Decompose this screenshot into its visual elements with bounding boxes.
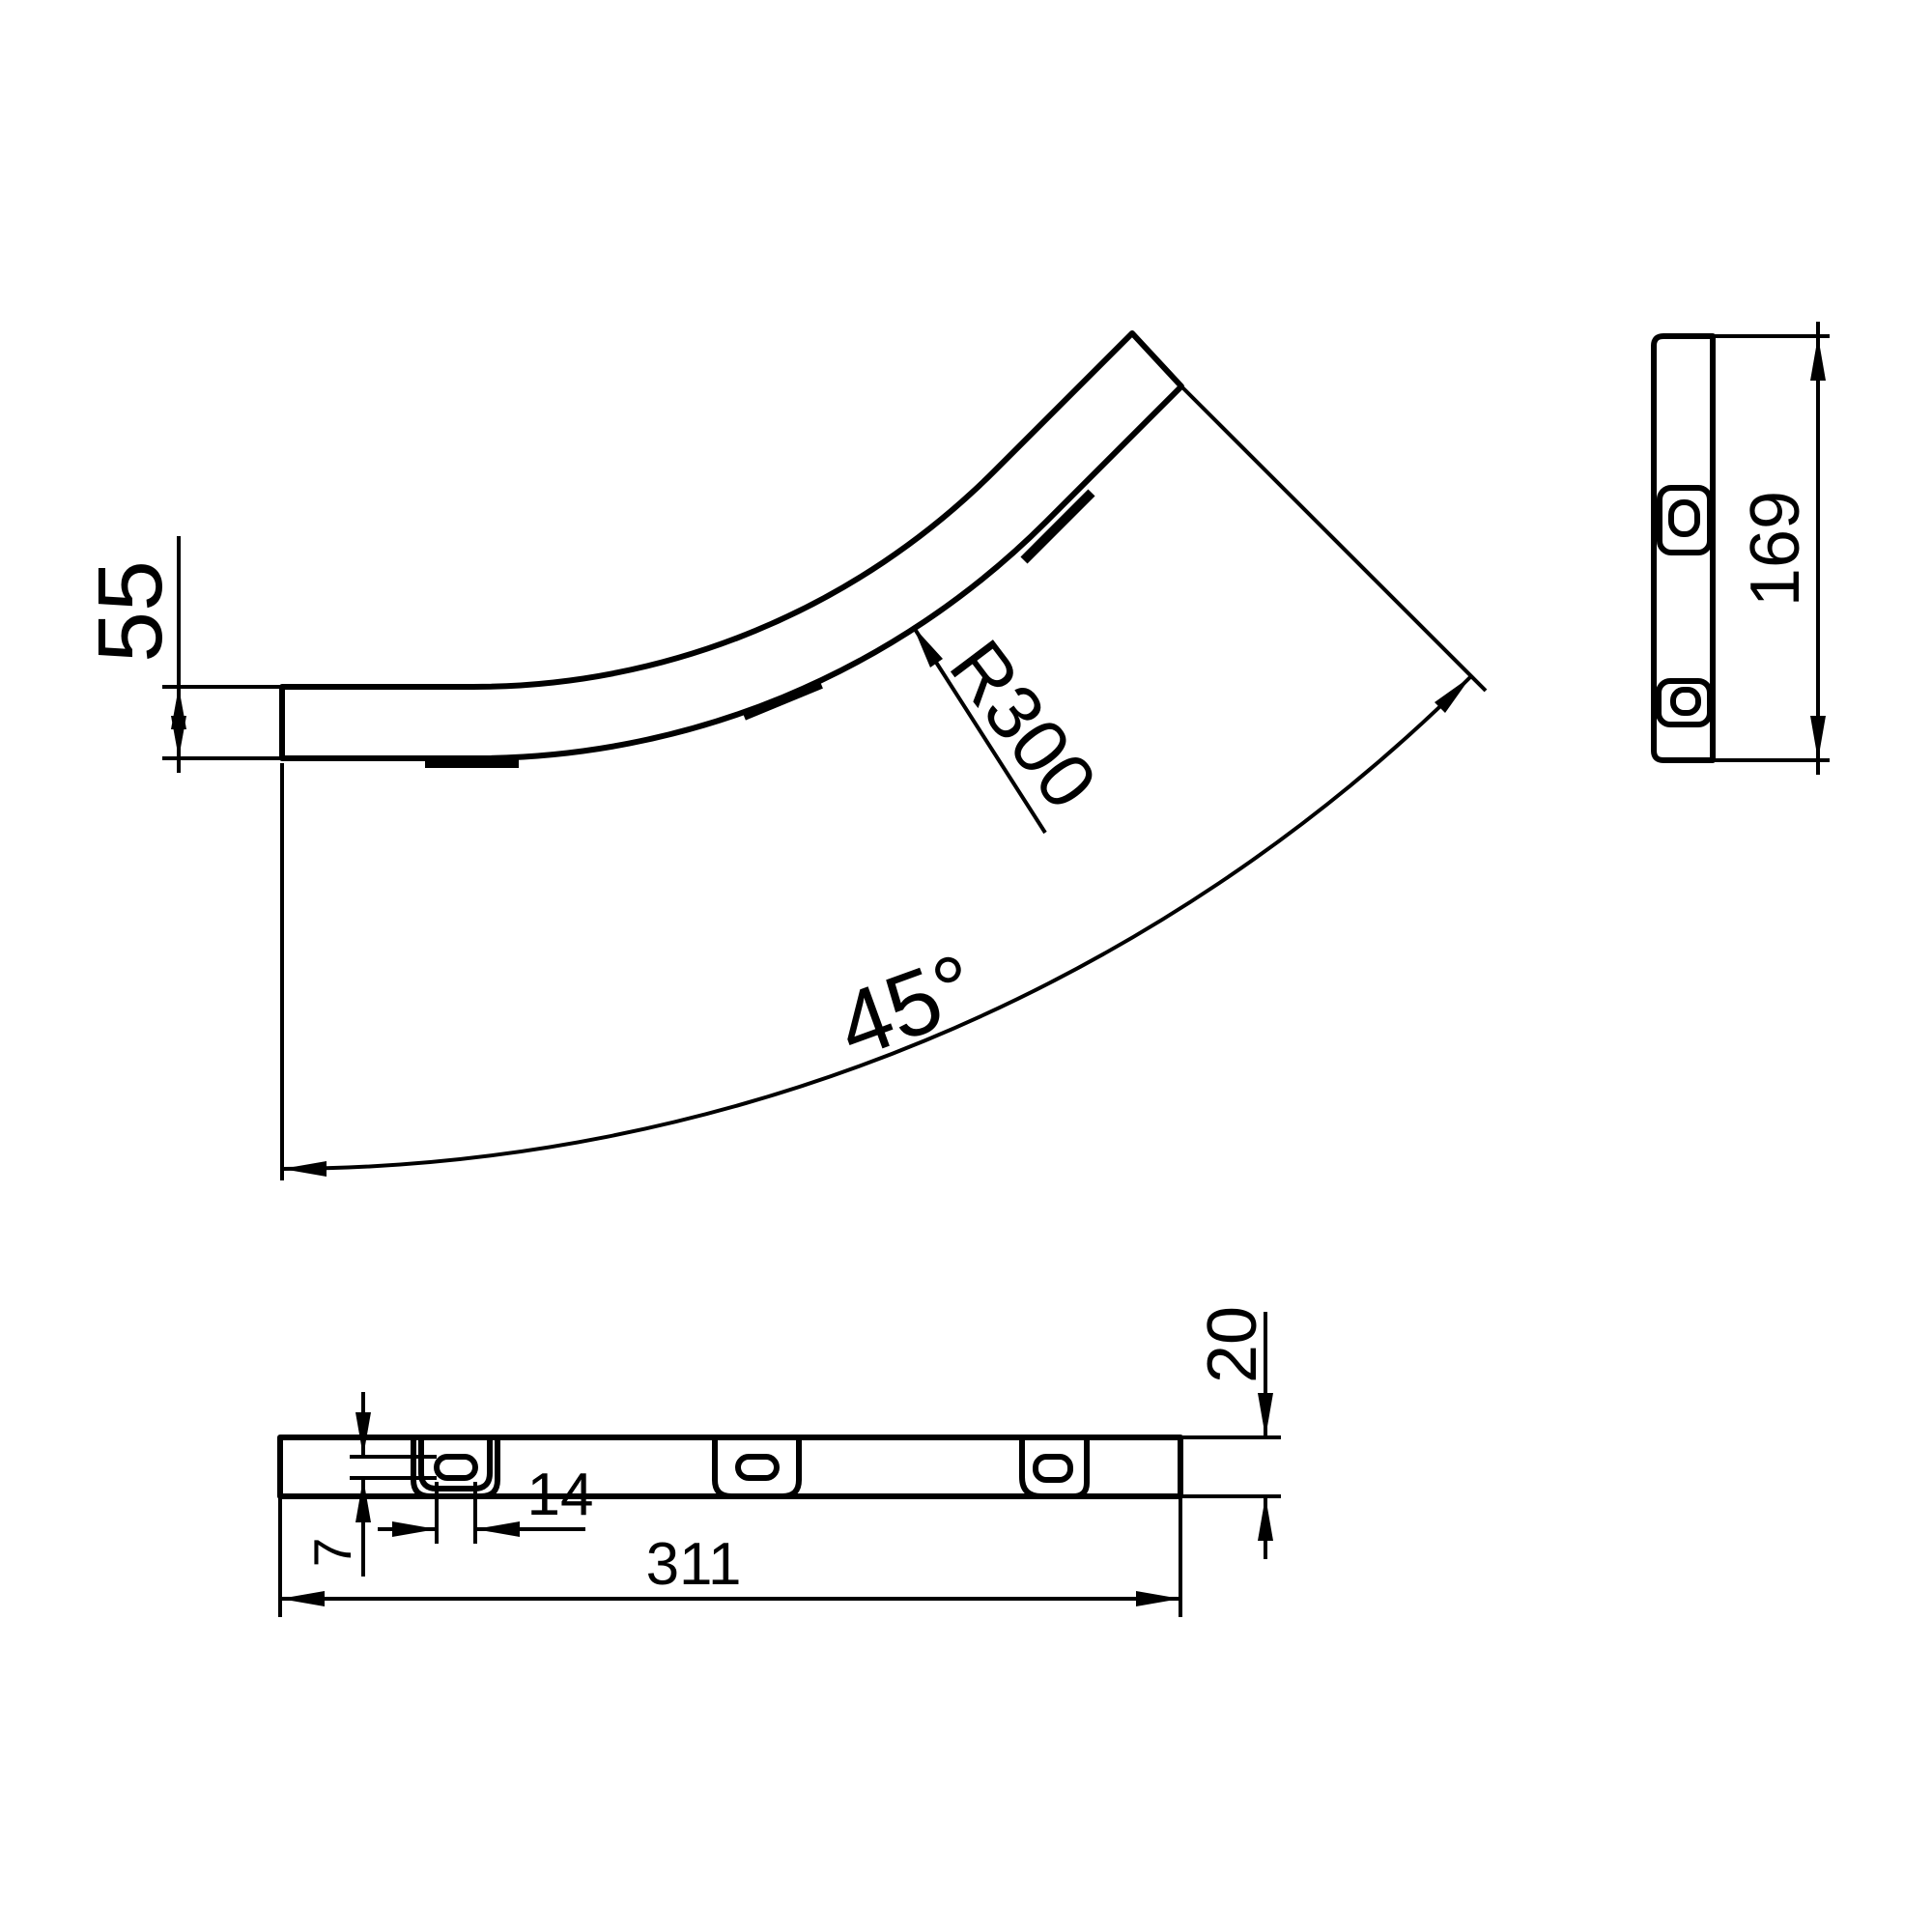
technical-drawing-canvas: 55 R300 45° 169 bbox=[0, 0, 1932, 1932]
dim-55-label: 55 bbox=[79, 560, 182, 663]
dim-55: 55 bbox=[79, 536, 282, 773]
dim-45-arrow-left bbox=[282, 1161, 327, 1177]
dim-20: 20 bbox=[1180, 1306, 1281, 1559]
side-view: 169 bbox=[1654, 322, 1830, 775]
bottom-slot-2 bbox=[738, 1457, 777, 1478]
bottom-tab-3 bbox=[1022, 1437, 1087, 1496]
dim-14-label: 14 bbox=[527, 1462, 594, 1528]
dim-14-arrow-right bbox=[392, 1521, 437, 1537]
main-view-bend-profile: 55 R300 45° bbox=[79, 333, 1486, 1180]
dim-169-arrow-up bbox=[1810, 336, 1826, 381]
bottom-tab-2 bbox=[715, 1437, 799, 1496]
dim-45-extension-right bbox=[1181, 386, 1486, 691]
dim-r300-arrow bbox=[913, 626, 943, 668]
side-view-tab-upper bbox=[1660, 488, 1710, 553]
dim-311-label: 311 bbox=[646, 1531, 742, 1598]
edge-tab-mark-2 bbox=[744, 684, 821, 716]
bottom-view: 20 7 14 311 bbox=[280, 1306, 1281, 1617]
dim-55-arrow-down bbox=[171, 716, 186, 758]
bottom-slot-3 bbox=[1036, 1457, 1070, 1480]
dim-45-arc bbox=[282, 676, 1471, 1169]
dim-r300: R300 bbox=[913, 625, 1114, 833]
dim-20-arrow-up bbox=[1258, 1496, 1273, 1541]
dim-14-arrow-left bbox=[475, 1521, 520, 1537]
dim-7-label: 7 bbox=[302, 1538, 362, 1568]
dim-r300-label: R300 bbox=[933, 625, 1113, 824]
dim-311-arrow-left bbox=[280, 1591, 325, 1606]
dim-169-label: 169 bbox=[1737, 491, 1814, 607]
dim-45deg: 45° bbox=[282, 386, 1486, 1180]
dim-311-arrow-right bbox=[1136, 1591, 1180, 1606]
edge-tab-mark-3 bbox=[1024, 493, 1092, 560]
side-view-slot-lower bbox=[1673, 690, 1698, 713]
dim-20-label: 20 bbox=[1194, 1306, 1271, 1383]
dim-45-arrow-right bbox=[1435, 676, 1471, 713]
dim-311: 311 bbox=[280, 1496, 1180, 1617]
bottom-slot-1 bbox=[437, 1457, 475, 1478]
dim-45-label: 45° bbox=[824, 935, 989, 1079]
dim-169: 169 bbox=[1713, 322, 1830, 775]
side-view-slot-upper bbox=[1671, 502, 1697, 534]
dim-169-arrow-down bbox=[1810, 716, 1826, 760]
dim-14: 14 bbox=[378, 1462, 593, 1544]
dim-7-arrow-up bbox=[355, 1478, 371, 1522]
dim-20-arrow-down bbox=[1258, 1393, 1273, 1437]
bottom-tab-1-inner bbox=[421, 1437, 490, 1489]
